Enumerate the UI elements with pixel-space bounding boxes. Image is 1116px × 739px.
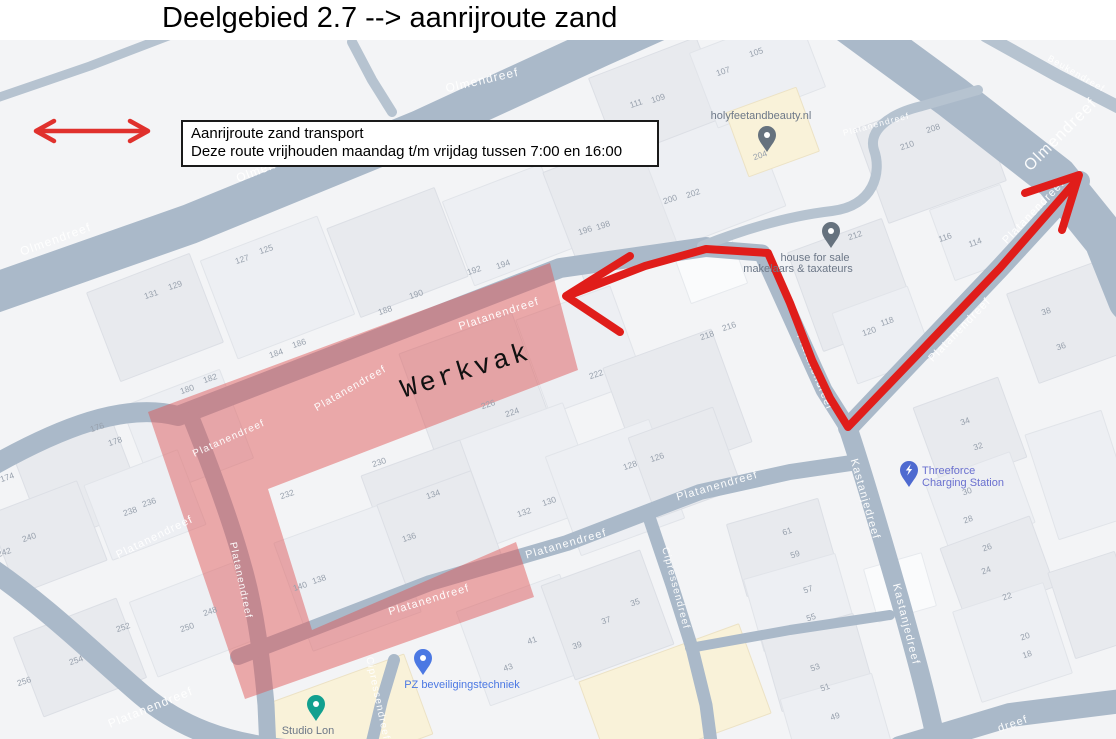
poi-label: Threeforce [922,465,975,477]
poi-label: Charging Station [922,477,1004,489]
pin-dot-icon [764,132,770,138]
pin-dot-icon [313,701,319,707]
legend-box: Aanrijroute zand transport Deze route vr… [181,120,659,167]
pin-dot-icon [420,655,426,661]
poi-label: PZ beveiligingstechniek [404,679,520,691]
poi-label: Studio Lon [282,725,335,737]
poi-label: holyfeetandbeauty.nl [711,110,812,122]
poi-label: makelaars & taxateurs [743,263,853,275]
legend-line-2: Deze route vrijhouden maandag t/m vrijda… [191,143,649,161]
map-canvas[interactable]: OlmendreefOlmendreefOlmendreefOlmendreef… [0,0,1116,739]
screenshot-canvas: Deelgebied 2.7 --> aanrijroute zand [0,0,1116,739]
page-title: Deelgebied 2.7 --> aanrijroute zand [162,2,617,35]
pin-dot-icon [828,228,834,234]
legend-line-1: Aanrijroute zand transport [191,125,649,143]
